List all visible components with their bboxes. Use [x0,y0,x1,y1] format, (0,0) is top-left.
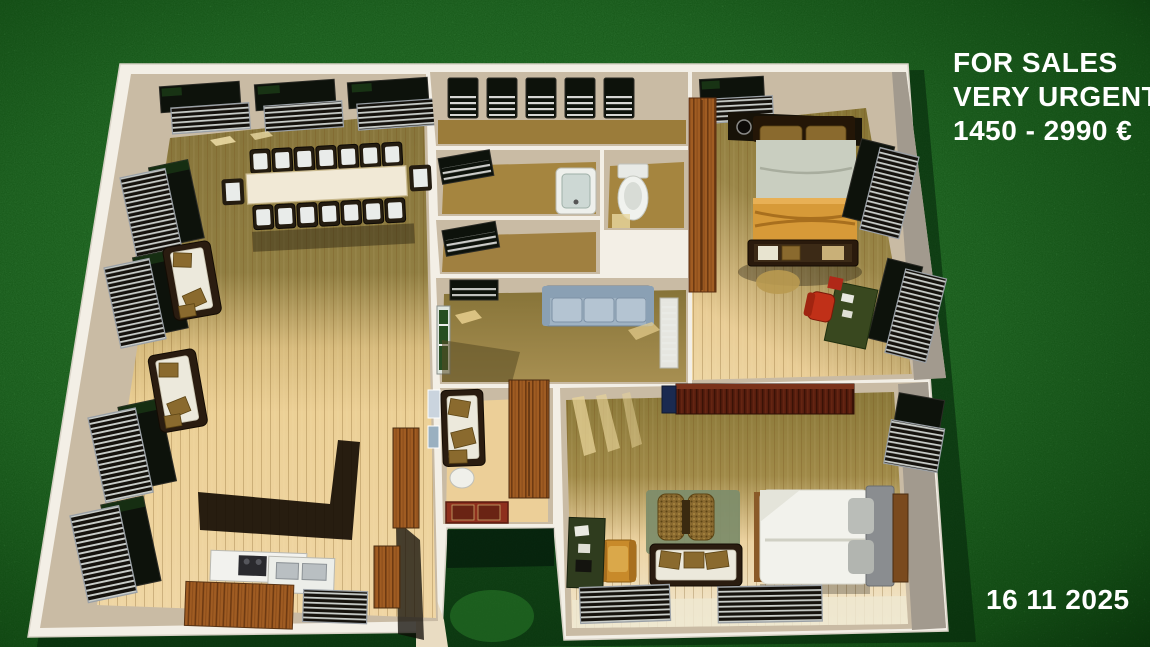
room-middle-living [436,278,688,384]
wall-picture [428,390,440,418]
wall-picture [428,426,439,448]
room-bathroom [436,150,600,216]
window [450,280,498,300]
screenshot-root: FOR SALES VERY URGENTE 1450 - 2990 € 16 … [0,0,1150,647]
sale-price: 1450 - 2990 € [953,114,1150,148]
window-radiator [347,77,436,131]
wicker-chair [658,494,714,540]
loveseat [441,389,486,466]
orange-armchair [600,540,636,582]
sale-line-1: FOR SALES [953,46,1150,80]
long-wardrobe [662,384,854,414]
double-bed [754,486,908,594]
tall-cabinet [393,428,419,528]
sale-line-2: VERY URGENTE [953,80,1150,114]
stove [238,555,267,576]
toilet [618,164,648,220]
ottoman [450,468,474,488]
window-radiator [254,79,343,133]
building [28,64,949,647]
red-rug [446,502,508,523]
gray-sofa [542,286,654,326]
radiator [579,584,670,623]
date-text: 16 11 2025 [986,583,1130,617]
kitchen-island [184,581,293,629]
desk [567,517,605,588]
room-hallway [428,380,553,524]
radiator [303,590,368,624]
window-radiator [159,81,250,135]
radiator [718,585,823,623]
bed-bench [893,494,908,582]
room-wc [604,150,688,230]
wall-lamp [737,120,751,134]
room-bedroom-top [689,72,948,384]
sale-banner: FOR SALES VERY URGENTE 1450 - 2990 € [953,46,1150,148]
wardrobe [689,98,716,292]
room-corridor [430,72,688,146]
room-storage [436,220,600,274]
date-stamp: 16 11 2025 [986,583,1130,617]
double-bed [738,116,862,294]
bathtub [556,168,596,214]
corridor-windows [448,78,634,118]
blue-cabinet [662,386,676,413]
wardrobe [509,380,549,498]
white-sofa [650,544,742,586]
room-bedroom-bottom [560,382,949,636]
kitchen-cabinet [374,546,400,608]
